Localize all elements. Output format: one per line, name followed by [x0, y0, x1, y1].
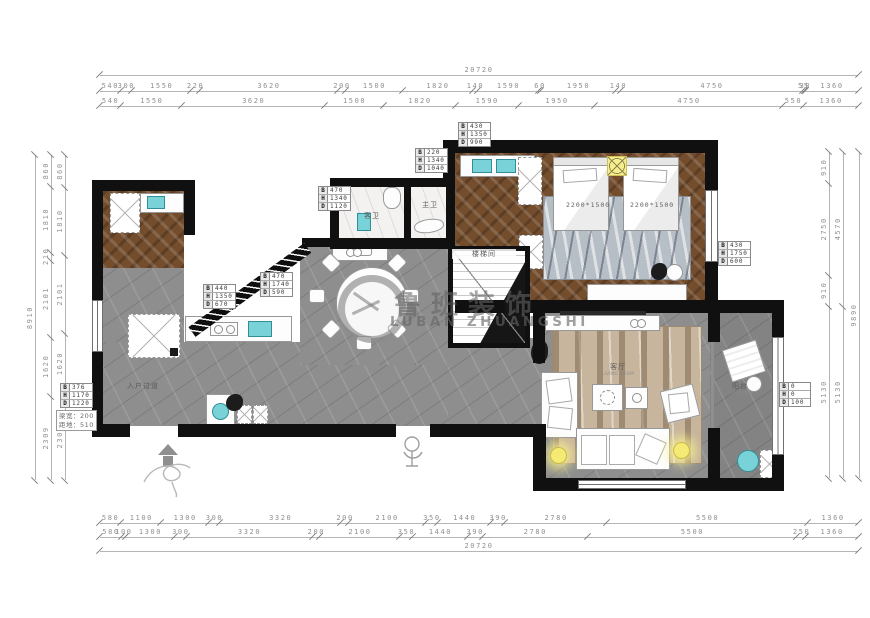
console-decor: [632, 319, 646, 328]
entry-sink: [147, 196, 165, 209]
wall-bedroom-bottom: [517, 300, 784, 313]
floor-lamp-left: [550, 447, 567, 464]
bath-guest-label: 客卫: [362, 211, 382, 221]
wall-hall-bottom-a: [302, 424, 396, 437]
beam-note-line1: 梁宽：200: [59, 412, 94, 421]
window-left: [92, 300, 103, 352]
wall-left-upper: [92, 180, 103, 300]
stairwell-label: 楼梯间: [452, 249, 516, 259]
stair-diagonal-line: [453, 251, 525, 343]
spec-box-7: B376H1170D1220: [60, 383, 93, 408]
wall-bath-divider: [404, 183, 411, 243]
dining-chair-s: [356, 336, 372, 350]
spec-box-2: B430H1350D990: [458, 122, 491, 147]
cooktop: [210, 322, 238, 336]
floor-lamp-right: [673, 442, 690, 459]
sideboard-decor: [348, 248, 362, 257]
wall-living-left: [533, 313, 545, 363]
sofa-pillow: [635, 433, 667, 465]
window-living-bottom: [578, 480, 686, 489]
appliance-2: [253, 405, 268, 424]
dim-bottom-overall: 20720: [100, 538, 858, 551]
armchair-left-cushion: [545, 377, 572, 404]
spec-box-6: B430H1750D600: [718, 241, 751, 266]
stairwell: [448, 246, 530, 348]
wall-right-outer-lower: [772, 455, 784, 491]
entry-doodle: [138, 452, 212, 498]
bed-left-headboard: [554, 158, 608, 166]
wall-balcony-div-lower: [708, 428, 720, 480]
floor-plan: 20720 5403001550220362020015001820140159…: [0, 0, 870, 618]
dim-left-outer: 2309162021012101810860: [38, 155, 51, 480]
ceiling-light: [607, 156, 627, 176]
dim-right-inner: 51309102750910: [816, 152, 829, 478]
bed-right-headboard: [624, 158, 678, 166]
wall-hall-bottom-b: [430, 424, 533, 437]
dim-right-outer: 51304570: [830, 152, 843, 478]
coffee-table-1: [592, 384, 623, 411]
bedroom-desk: [587, 284, 687, 301]
bed-right-pillow: [633, 168, 668, 183]
corridor-figure-dark: [226, 394, 243, 411]
beam-note: 梁宽：200 距地：510: [56, 410, 97, 431]
dim-left-inner: 2309162021011810860: [52, 155, 65, 480]
sofa-cushion-2: [609, 435, 635, 465]
dim-left-overall: 8910: [22, 155, 35, 480]
tv: [560, 311, 646, 315]
spec-box-4: B470H1740D590: [260, 272, 293, 297]
table-plant: [600, 390, 615, 405]
bed-right: [623, 157, 679, 231]
wardrobe-upper: [518, 157, 542, 205]
bed-left-size: 2200*1500: [566, 201, 610, 209]
balcony-label: 阳台BALCONY: [725, 381, 755, 396]
hall-figure-doodle: [394, 432, 432, 470]
wall-bottom-left-b: [178, 424, 302, 437]
wall-right-outer-upper: [772, 305, 784, 337]
wall-bedroom-bottom-left: [455, 300, 505, 313]
spec-box-8: B0H0D100: [779, 382, 811, 407]
table-tray: [632, 393, 642, 403]
vanity-sink-right: [496, 159, 516, 173]
wall-bottom-left-a: [92, 424, 130, 437]
wall-bedroom-right-upper: [705, 140, 718, 190]
bed-left: [553, 157, 609, 231]
armchair-left-pillow: [547, 406, 573, 430]
sofa-cushion-1: [581, 435, 607, 465]
kitchen-sink: [248, 321, 272, 337]
balcony-round-table: [737, 450, 759, 472]
beam-note-line2: 距地：510: [59, 421, 94, 430]
bedroom-chair-dark: [651, 263, 667, 280]
bath-master-label: 主卫: [420, 200, 440, 210]
wall-entryblock-top: [92, 180, 195, 191]
toilet: [383, 187, 401, 209]
dim-top-overall: 20720: [100, 62, 858, 75]
sofa: [576, 428, 670, 470]
spec-box-5: B440H1350D670: [203, 284, 236, 309]
corridor-label: 入户过道: [118, 381, 168, 391]
vanity-sink-left: [472, 159, 492, 173]
bed-right-size: 2200*1500: [630, 201, 674, 209]
dining-chair-w: [309, 289, 325, 303]
wall-balcony-div-upper: [708, 312, 720, 342]
dim-bottom-upper: 5801100130030033202002100350144039027805…: [100, 510, 858, 523]
coffee-table-2: [625, 387, 648, 409]
dim-right-overall: 9890: [846, 152, 859, 478]
entry-cabinet: [110, 193, 140, 233]
spec-box-1: B220H1340D1040: [415, 148, 448, 173]
living-label: 客厅LIVING ROOM: [588, 362, 648, 377]
bed-left-pillow: [563, 168, 598, 183]
dim-top-fine: 5403001550220362020015001820140159060195…: [100, 78, 858, 91]
armchair-left: [541, 372, 578, 438]
burner-2: [226, 325, 235, 334]
burner-1: [214, 325, 223, 334]
dim-top-coarse: 54015503620150018201590195047505501360: [100, 93, 858, 106]
bedroom-stool: [666, 264, 683, 281]
armchair-right-cushion: [668, 392, 690, 414]
wall-dining-top: [302, 238, 450, 247]
balcony-sliding-door: [711, 342, 714, 428]
spec-box-3: B470H1340D1120: [318, 186, 351, 211]
shaft-corner: [170, 348, 178, 356]
dim-bottom-lower: 5801001300300332020021003501440390278055…: [100, 524, 858, 537]
dining-chair-e: [403, 289, 419, 303]
wall-entryblock-right: [184, 180, 195, 235]
window-bedroom-right: [705, 190, 718, 262]
